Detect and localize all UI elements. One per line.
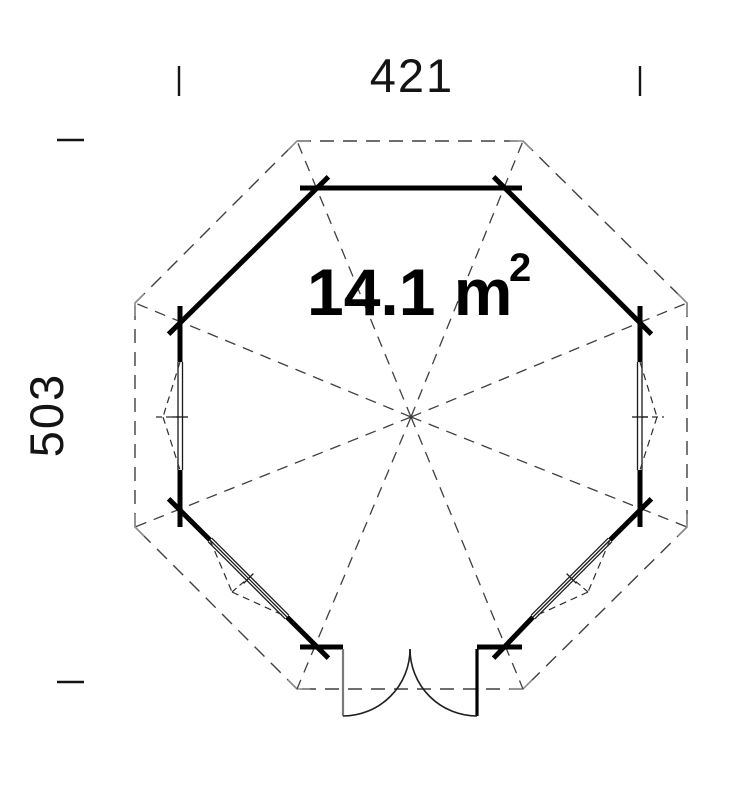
- door-swing-arc-right: [410, 649, 477, 716]
- dimension-marks: [57, 66, 640, 682]
- height-dimension-label: 503: [20, 373, 73, 457]
- window-left: [156, 362, 188, 470]
- roof-edge-bottom-left: [135, 527, 297, 689]
- hip-line: [411, 417, 687, 527]
- wall-bottom-right-lower: [494, 617, 533, 658]
- roof-edge-top-right: [523, 141, 687, 303]
- roof-hip-lines: [135, 141, 687, 689]
- roof-corner-marks: [135, 141, 687, 689]
- double-door: [343, 649, 477, 716]
- roof-edge-top-left: [135, 141, 297, 303]
- wall-top-left: [169, 177, 329, 334]
- roof-outline: [135, 141, 687, 689]
- area-exponent-label: 2: [509, 246, 531, 290]
- window-bottom-right: [531, 538, 612, 619]
- floor-plan-page: 421 503 14.1 m 2: [0, 0, 738, 790]
- wall-bottom-left-lower: [287, 617, 328, 658]
- window-apex-dash: [232, 579, 247, 592]
- window-right: [632, 362, 664, 470]
- area-label: 14.1 m: [307, 255, 512, 329]
- width-dimension-label: 421: [370, 49, 454, 102]
- floor-plan-canvas: 421 503 14.1 m 2: [0, 0, 738, 790]
- door-swing-arc-left: [343, 649, 410, 716]
- window-bottom-left: [208, 538, 289, 619]
- hip-line: [135, 417, 411, 527]
- window-apex-dash: [573, 579, 588, 592]
